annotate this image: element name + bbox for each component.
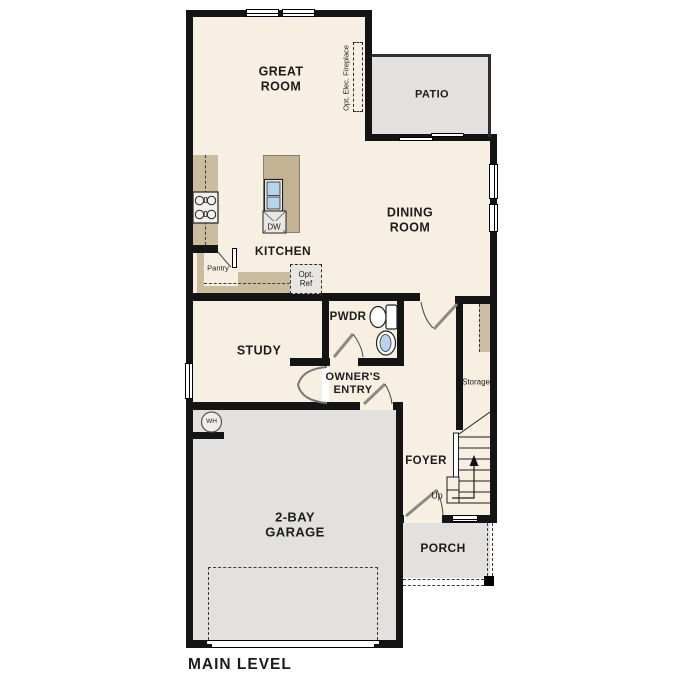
dining-room-label: DININGROOM: [387, 205, 433, 235]
pwdr-label: PWDR: [330, 311, 367, 325]
toilet-icon: [370, 305, 397, 329]
kitchen-sink-icon: [265, 180, 283, 212]
stairs-up-label: Up: [431, 491, 443, 502]
floor-plan: GREATROOM PATIO DININGROOM KITCHEN STUDY…: [0, 0, 687, 687]
stairs: [447, 412, 490, 503]
dishwasher-label: DW: [267, 222, 280, 231]
storage-label: Storage: [462, 377, 490, 386]
opt-ref-box: Opt. Ref: [290, 264, 322, 294]
plan-title: MAIN LEVEL: [188, 656, 292, 674]
pwdr-door: [334, 334, 363, 357]
water-heater-label: WH: [206, 418, 217, 426]
garage-label: 2-BAYGARAGE: [265, 510, 324, 541]
fireplace-label: Opt. Elec. Fireplace: [342, 45, 351, 111]
stove-icon: [193, 192, 218, 223]
great-room-label: GREATROOM: [259, 64, 304, 94]
foyer-label: FOYER: [405, 455, 447, 469]
study-label: STUDY: [237, 344, 281, 359]
study-double-door: [298, 367, 327, 403]
storage-door: [421, 302, 457, 329]
opt-ref-line1: Opt.: [298, 270, 313, 280]
opt-ref-line2: Ref: [300, 279, 312, 289]
porch-label: PORCH: [420, 541, 465, 555]
owners-entry-label: OWNER'SENTRY: [326, 371, 381, 397]
pantry-label: Pantry: [207, 265, 229, 274]
sink-icon: [377, 331, 396, 355]
kitchen-label: KITCHEN: [255, 244, 311, 258]
patio-label: PATIO: [415, 89, 449, 102]
